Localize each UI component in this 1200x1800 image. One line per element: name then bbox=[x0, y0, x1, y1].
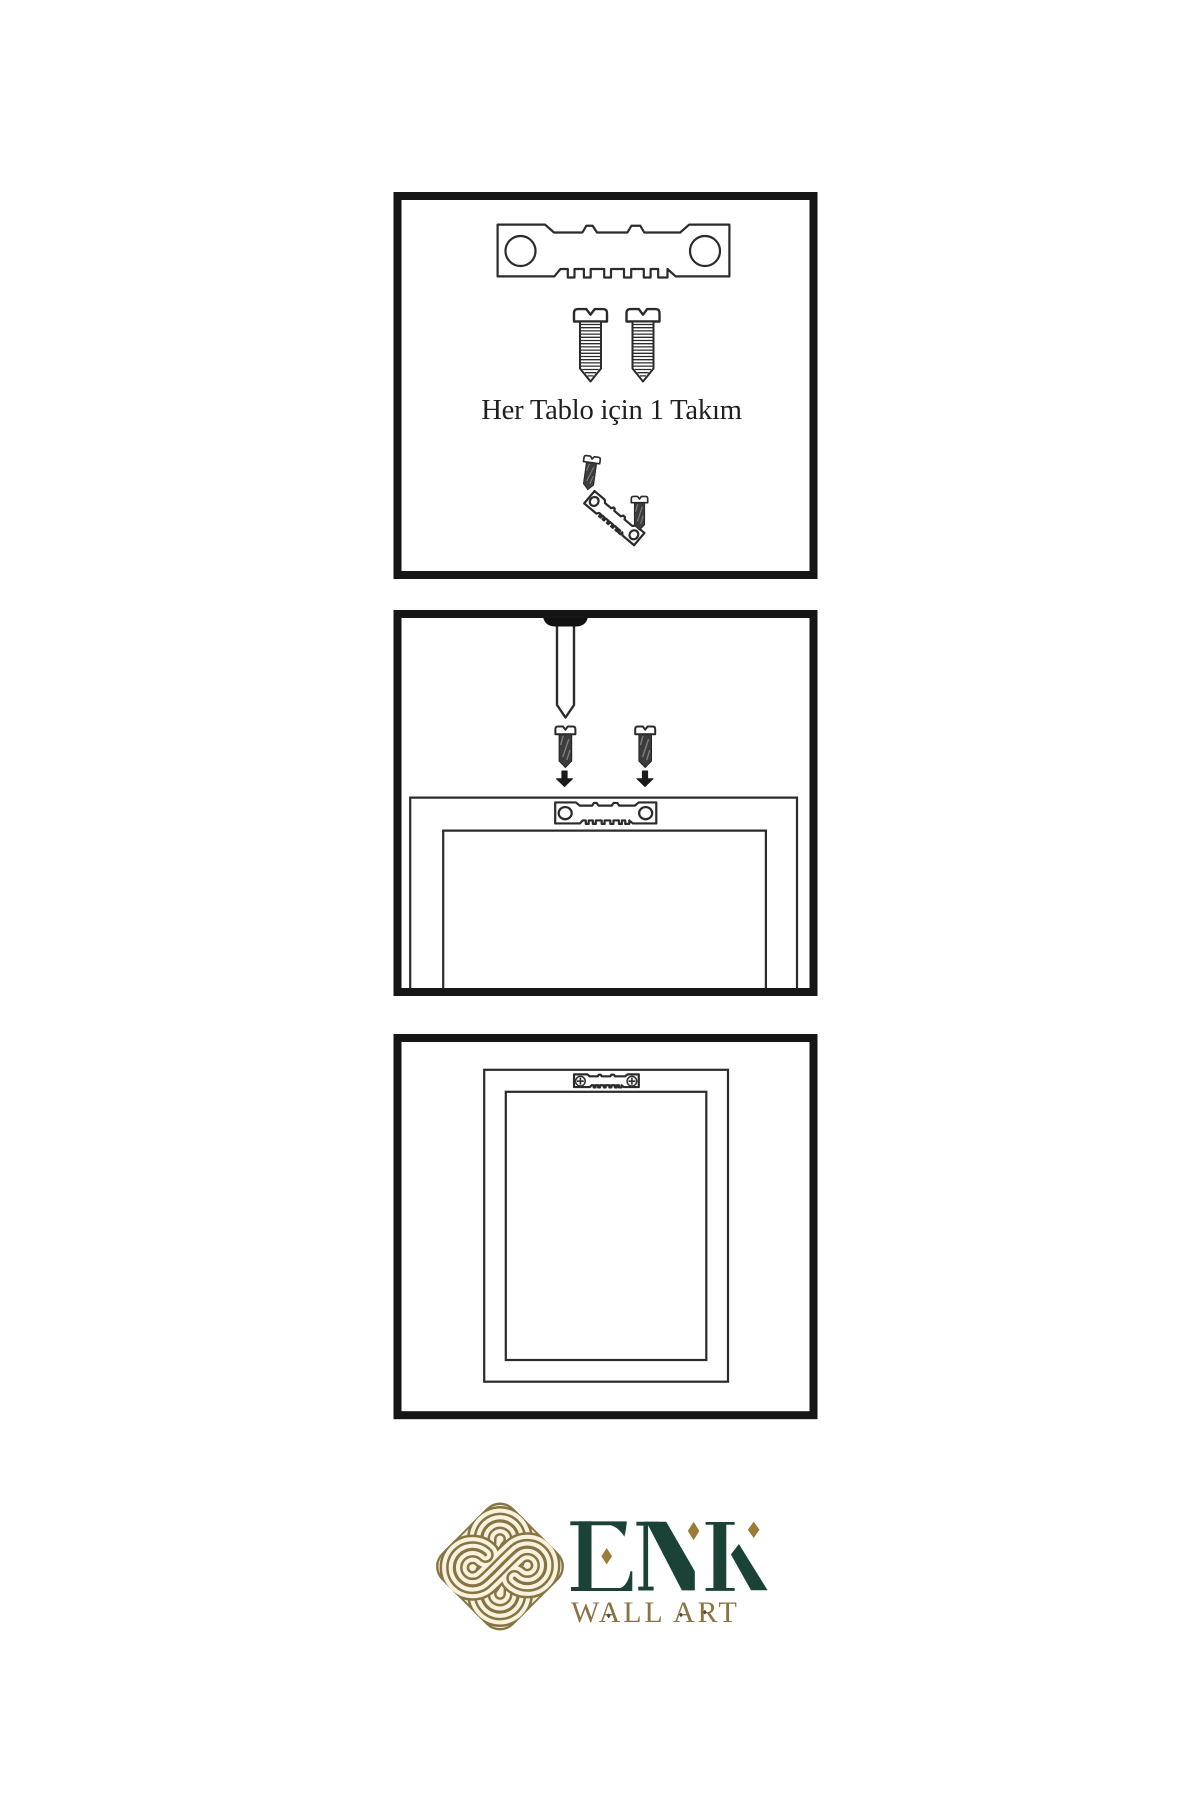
svg-text:Her Tablo için 1 Takım: Her Tablo için 1 Takım bbox=[481, 395, 742, 426]
svg-text:WALL ART: WALL ART bbox=[571, 1596, 740, 1629]
